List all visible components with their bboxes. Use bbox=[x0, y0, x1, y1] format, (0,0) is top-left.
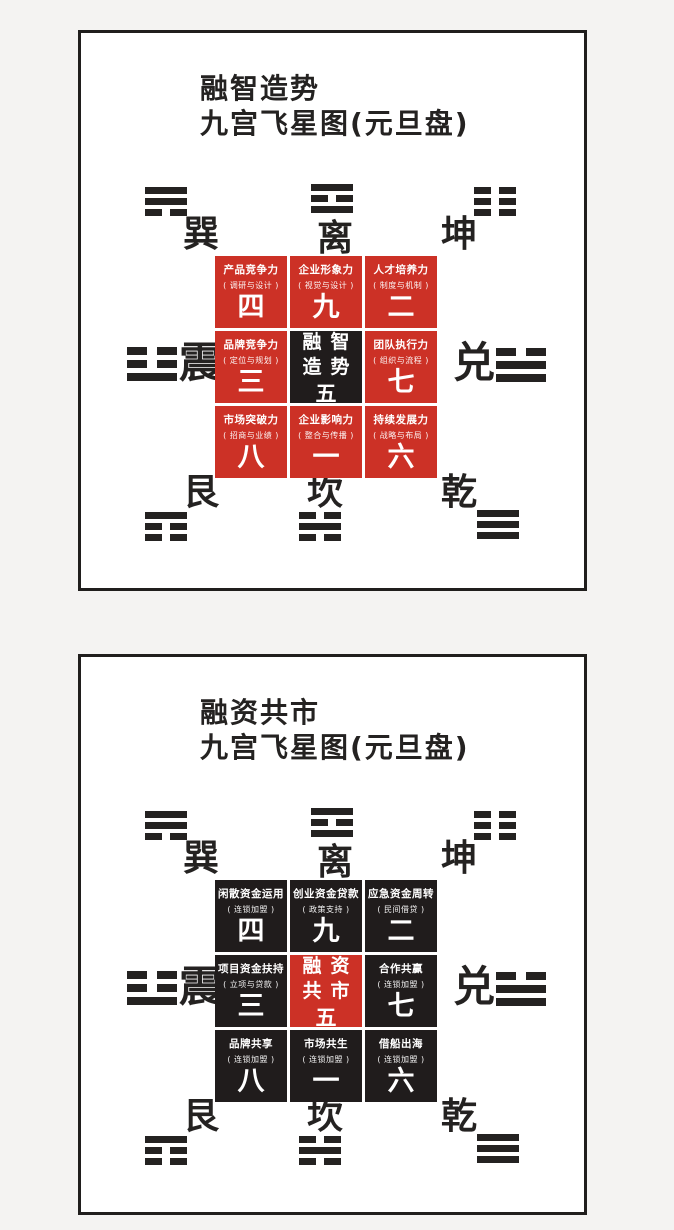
nine-palace-grid: 产品竞争力 ( 调研与设计 ) 四 企业形象力 ( 视觉与设计 ) 九 人才培养… bbox=[215, 256, 437, 478]
trigram-kun-icon bbox=[474, 187, 516, 216]
compass-label-gen: 艮 bbox=[183, 475, 219, 511]
cell-subtitle: ( 整合与传播 ) bbox=[298, 430, 354, 441]
cell-star-number: 八 bbox=[238, 1068, 265, 1095]
compass-label-qian: 乾 bbox=[441, 475, 477, 511]
trigram-xun-icon bbox=[145, 187, 187, 216]
trigram-qian-icon bbox=[477, 510, 519, 539]
grid-cell: 市场共生 ( 连锁加盟 ) 一 bbox=[290, 1030, 362, 1102]
cell-star-number: 一 bbox=[313, 1068, 340, 1095]
cell-name: 借船出海 bbox=[379, 1038, 423, 1051]
trigram-li-icon bbox=[311, 184, 353, 213]
cell-star-number: 八 bbox=[238, 444, 265, 471]
trigram-dui-icon bbox=[496, 348, 546, 382]
cell-name: 项目资金扶持 bbox=[218, 963, 284, 976]
grid-cell: 创业资金贷款 ( 政策支持 ) 九 bbox=[290, 880, 362, 952]
grid-cell: 项目资金扶持 ( 立项与贷款 ) 三 bbox=[215, 955, 287, 1027]
cell-name: 融智 造势 bbox=[293, 331, 358, 380]
panel-title-line1: 融智造势 bbox=[200, 71, 470, 106]
trigram-gen-icon bbox=[145, 512, 187, 541]
cell-star-number: 六 bbox=[388, 1068, 415, 1095]
cell-name: 市场共生 bbox=[304, 1038, 348, 1051]
trigram-zhen-icon bbox=[127, 971, 177, 1005]
cell-name: 企业形象力 bbox=[299, 264, 354, 277]
compass-label-kun: 坤 bbox=[441, 841, 477, 877]
cell-subtitle: ( 连锁加盟 ) bbox=[302, 1054, 349, 1065]
grid-cell: 企业形象力 ( 视觉与设计 ) 九 bbox=[290, 256, 362, 328]
trigram-kan-icon bbox=[299, 1136, 341, 1165]
cell-star-number: 二 bbox=[388, 918, 415, 945]
grid-cell: 合作共赢 ( 连锁加盟 ) 七 bbox=[365, 955, 437, 1027]
panel-title: 融资共市 九宫飞星图(元旦盘) bbox=[200, 695, 470, 765]
compass-label-dui: 兑 bbox=[453, 342, 495, 384]
cell-name: 融资 共市 bbox=[293, 955, 358, 1004]
compass-label-kun: 坤 bbox=[441, 217, 477, 253]
compass-label-xun: 巽 bbox=[183, 841, 219, 877]
cell-star-number: 七 bbox=[388, 993, 415, 1020]
poster-page: 融智造势 九宫飞星图(元旦盘) 巽 离 坤 震 兑 艮 坎 乾 产品竞争力 ( … bbox=[0, 0, 674, 1230]
compass-label-gen: 艮 bbox=[183, 1099, 219, 1135]
compass-label-qian: 乾 bbox=[441, 1099, 477, 1135]
cell-subtitle: ( 政策支持 ) bbox=[302, 904, 349, 915]
cell-subtitle: ( 招商与业绩 ) bbox=[223, 430, 279, 441]
cell-name: 闲散资金运用 bbox=[218, 888, 284, 901]
trigram-li-icon bbox=[311, 808, 353, 837]
trigram-gen-icon bbox=[145, 1136, 187, 1165]
grid-cell: 持续发展力 ( 战略与布局 ) 六 bbox=[365, 406, 437, 478]
compass-label-li: 离 bbox=[317, 845, 353, 881]
compass-label-xun: 巽 bbox=[183, 217, 219, 253]
cell-star-number: 四 bbox=[238, 918, 265, 945]
cell-name: 创业资金贷款 bbox=[293, 888, 359, 901]
panel-rongzhi-zaoshi: 融智造势 九宫飞星图(元旦盘) 巽 离 坤 震 兑 艮 坎 乾 产品竞争力 ( … bbox=[78, 30, 587, 591]
grid-cell: 品牌竞争力 ( 定位与规划 ) 三 bbox=[215, 331, 287, 403]
trigram-kan-icon bbox=[299, 512, 341, 541]
compass-label-li: 离 bbox=[317, 221, 353, 257]
trigram-zhen-icon bbox=[127, 347, 177, 381]
cell-star-number: 二 bbox=[388, 294, 415, 321]
cell-name: 产品竞争力 bbox=[224, 264, 279, 277]
cell-name: 市场突破力 bbox=[224, 414, 279, 427]
cell-star-number: 四 bbox=[238, 294, 265, 321]
cell-subtitle: ( 视觉与设计 ) bbox=[298, 280, 354, 291]
cell-name: 应急资金周转 bbox=[368, 888, 434, 901]
cell-name: 人才培养力 bbox=[374, 264, 429, 277]
trigram-xun-icon bbox=[145, 811, 187, 840]
nine-palace-grid: 闲散资金运用 ( 连锁加盟 ) 四 创业资金贷款 ( 政策支持 ) 九 应急资金… bbox=[215, 880, 437, 1102]
cell-star-number: 三 bbox=[238, 369, 265, 396]
compass-label-dui: 兑 bbox=[453, 966, 495, 1008]
cell-star-number: 五 bbox=[316, 1008, 337, 1028]
panel-title: 融智造势 九宫飞星图(元旦盘) bbox=[200, 71, 470, 141]
grid-cell: 应急资金周转 ( 民间借贷 ) 二 bbox=[365, 880, 437, 952]
compass-label-kan: 坎 bbox=[307, 1099, 343, 1135]
trigram-qian-icon bbox=[477, 1134, 519, 1163]
cell-star-number: 九 bbox=[313, 294, 340, 321]
grid-cell: 闲散资金运用 ( 连锁加盟 ) 四 bbox=[215, 880, 287, 952]
grid-cell: 品牌共享 ( 连锁加盟 ) 八 bbox=[215, 1030, 287, 1102]
panel-title-line1: 融资共市 bbox=[200, 695, 470, 730]
cell-name: 持续发展力 bbox=[374, 414, 429, 427]
cell-star-number: 三 bbox=[238, 993, 265, 1020]
cell-subtitle: ( 制度与机制 ) bbox=[373, 280, 429, 291]
cell-star-number: 五 bbox=[316, 384, 337, 404]
grid-cell: 团队执行力 ( 组织与流程 ) 七 bbox=[365, 331, 437, 403]
cell-subtitle: ( 民间借贷 ) bbox=[377, 904, 424, 915]
cell-name: 企业影响力 bbox=[299, 414, 354, 427]
grid-cell: 人才培养力 ( 制度与机制 ) 二 bbox=[365, 256, 437, 328]
trigram-dui-icon bbox=[496, 972, 546, 1006]
grid-cell: 融资 共市 五 bbox=[290, 955, 362, 1027]
cell-name: 品牌共享 bbox=[229, 1038, 273, 1051]
cell-name: 合作共赢 bbox=[379, 963, 423, 976]
panel-title-line2: 九宫飞星图(元旦盘) bbox=[200, 730, 470, 765]
cell-star-number: 七 bbox=[388, 369, 415, 396]
cell-subtitle: ( 连锁加盟 ) bbox=[377, 979, 424, 990]
grid-cell: 企业影响力 ( 整合与传播 ) 一 bbox=[290, 406, 362, 478]
cell-subtitle: ( 立项与贷款 ) bbox=[223, 979, 279, 990]
cell-subtitle: ( 连锁加盟 ) bbox=[377, 1054, 424, 1065]
cell-subtitle: ( 定位与规划 ) bbox=[223, 355, 279, 366]
cell-name: 品牌竞争力 bbox=[224, 339, 279, 352]
cell-subtitle: ( 调研与设计 ) bbox=[223, 280, 279, 291]
cell-subtitle: ( 连锁加盟 ) bbox=[227, 904, 274, 915]
cell-subtitle: ( 战略与布局 ) bbox=[373, 430, 429, 441]
compass-label-kan: 坎 bbox=[307, 475, 343, 511]
cell-star-number: 六 bbox=[388, 444, 415, 471]
grid-cell: 融智 造势 五 bbox=[290, 331, 362, 403]
grid-cell: 市场突破力 ( 招商与业绩 ) 八 bbox=[215, 406, 287, 478]
cell-name: 团队执行力 bbox=[374, 339, 429, 352]
panel-rongzi-gongshi: 融资共市 九宫飞星图(元旦盘) 巽 离 坤 震 兑 艮 坎 乾 闲散资金运用 (… bbox=[78, 654, 587, 1215]
grid-cell: 借船出海 ( 连锁加盟 ) 六 bbox=[365, 1030, 437, 1102]
panel-title-line2: 九宫飞星图(元旦盘) bbox=[200, 106, 470, 141]
trigram-kun-icon bbox=[474, 811, 516, 840]
cell-subtitle: ( 连锁加盟 ) bbox=[227, 1054, 274, 1065]
grid-cell: 产品竞争力 ( 调研与设计 ) 四 bbox=[215, 256, 287, 328]
cell-star-number: 九 bbox=[313, 918, 340, 945]
cell-subtitle: ( 组织与流程 ) bbox=[373, 355, 429, 366]
cell-star-number: 一 bbox=[313, 444, 340, 471]
